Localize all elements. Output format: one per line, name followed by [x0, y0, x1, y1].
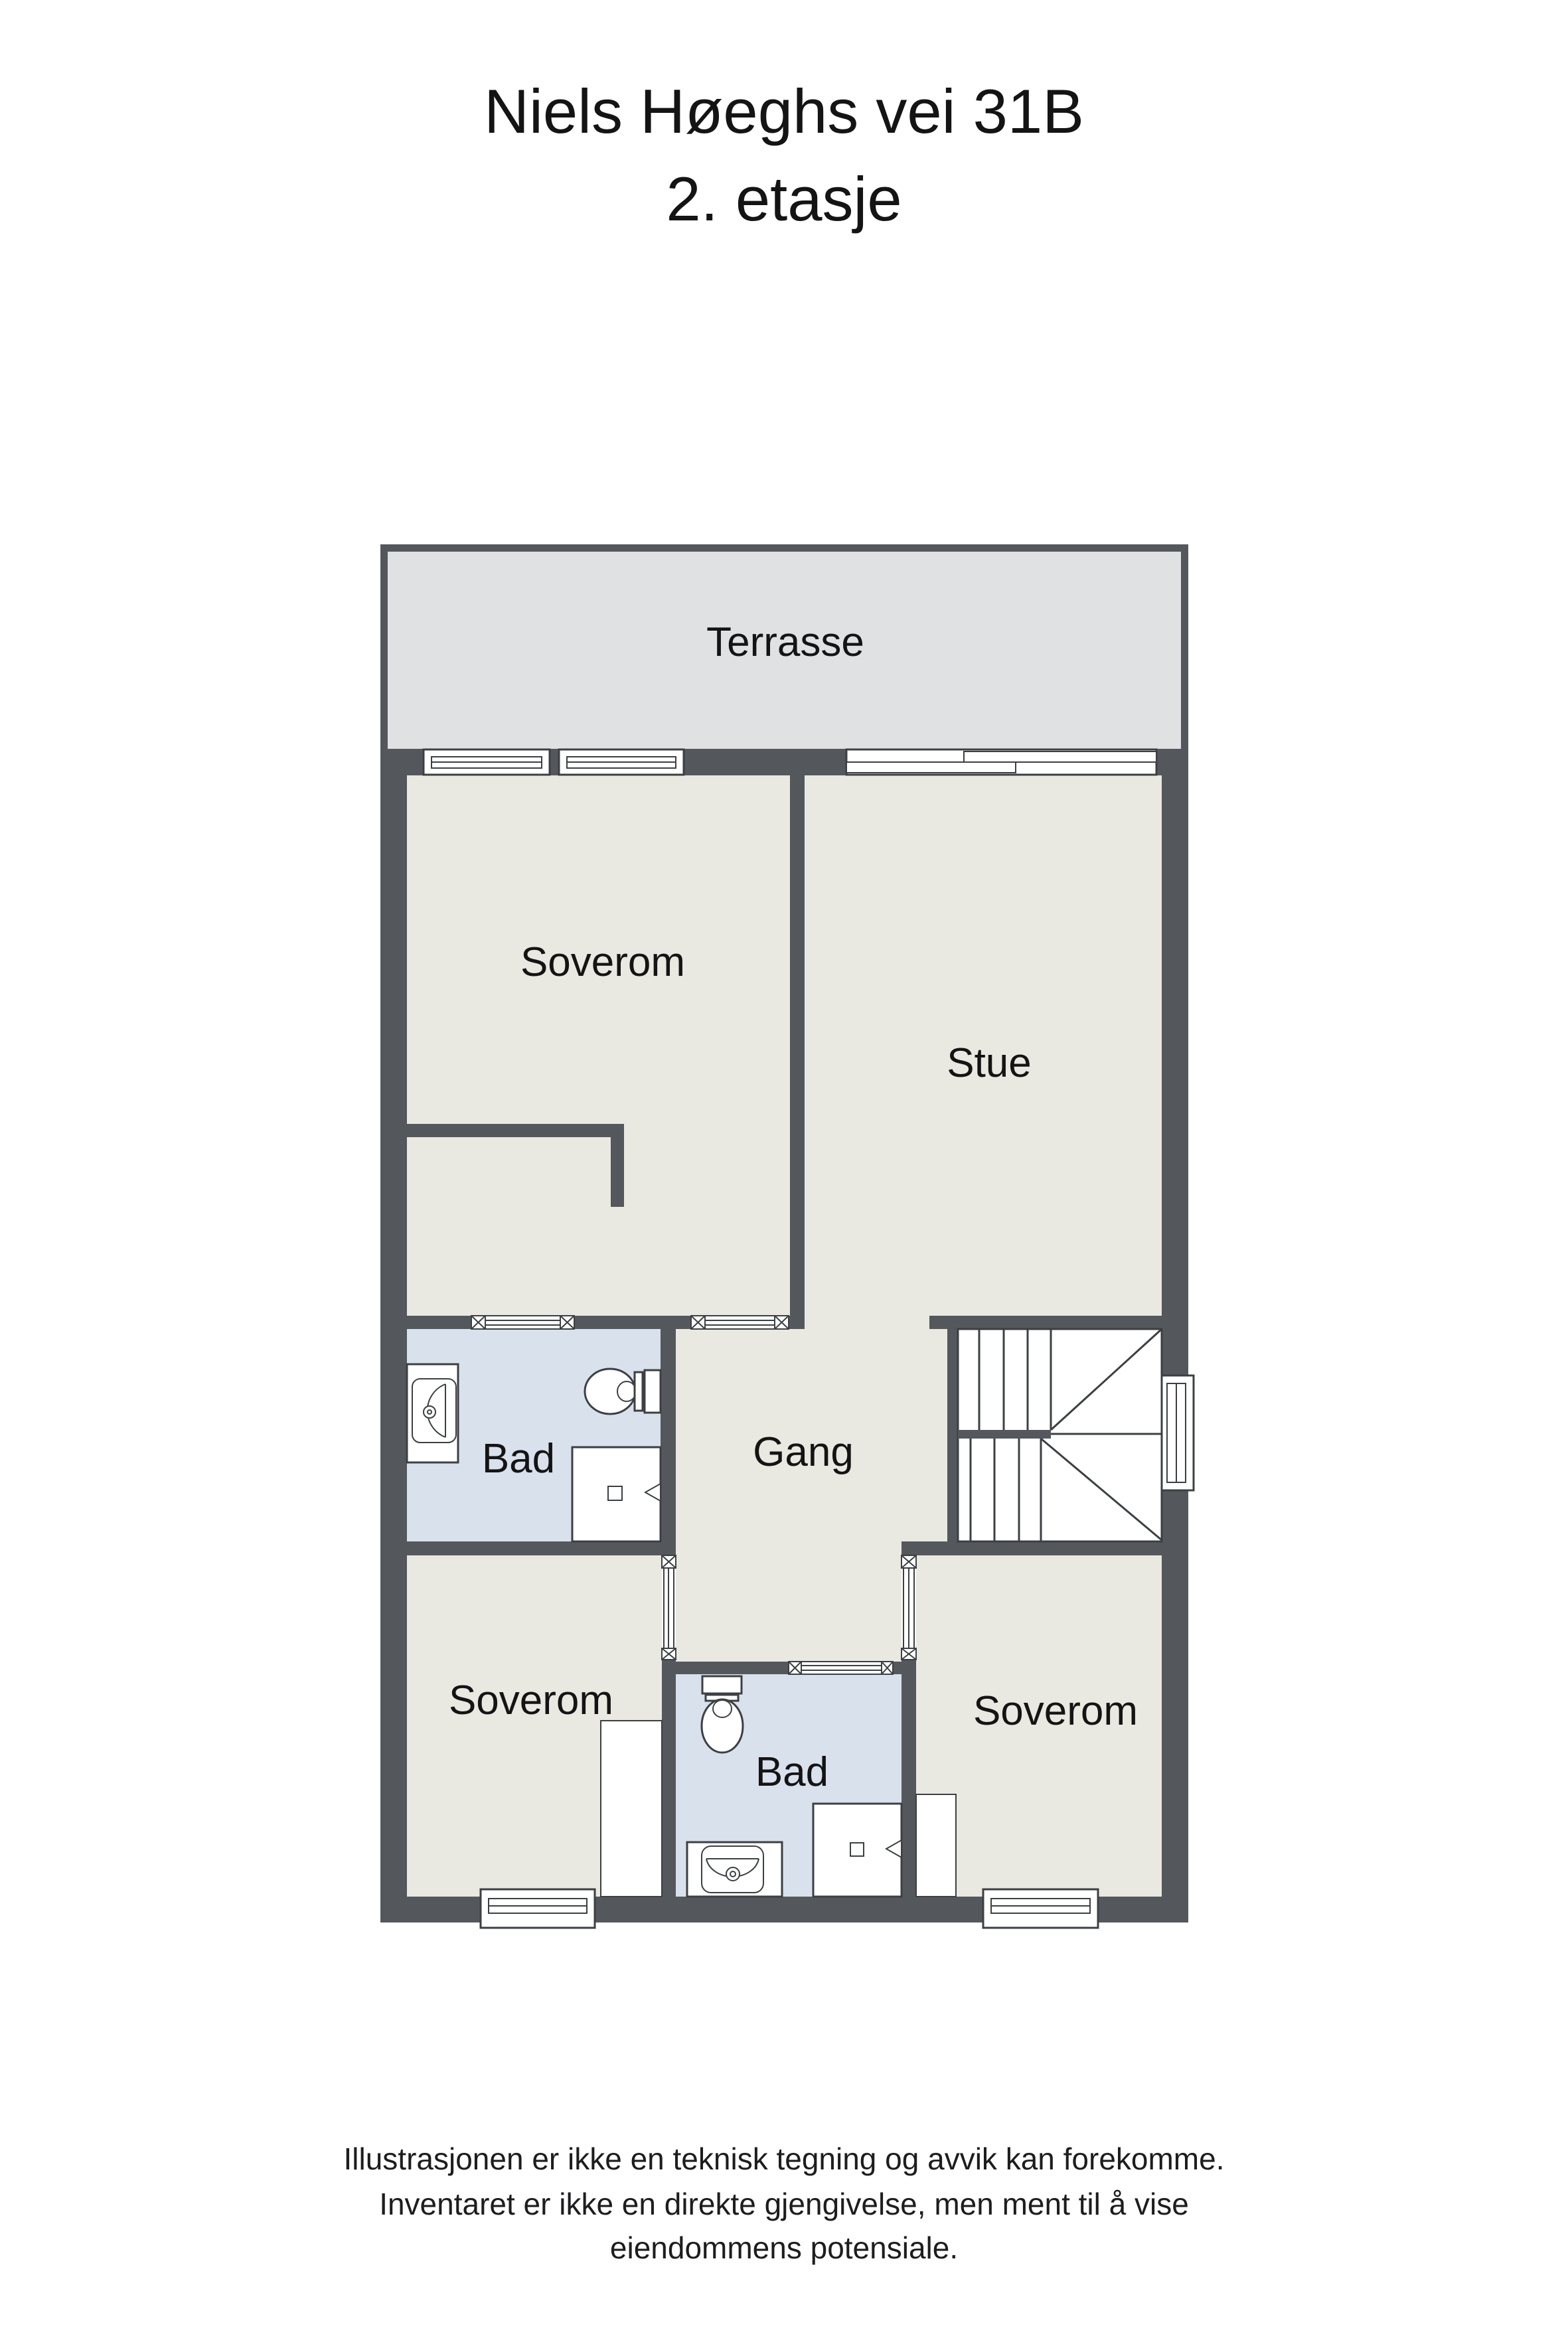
- exterior-wall-right: [1162, 749, 1188, 1922]
- stue-gang-opening: [805, 1316, 929, 1329]
- room-label-terrasse: Terrasse: [706, 619, 864, 665]
- disclaimer-line3: eiendommens potensiale.: [610, 2231, 958, 2265]
- disclaimer-line2: Inventaret er ikke en direkte gjengivels…: [379, 2187, 1189, 2221]
- disclaimer-line1: Illustrasjonen er ikke en teknisk tegnin…: [344, 2142, 1225, 2176]
- sink-fixture-bottom: [687, 1842, 782, 1897]
- room-label-bad-bottom: Bad: [755, 1749, 828, 1795]
- interior-window-2: [691, 1316, 789, 1329]
- gang-vestibule-floor: [676, 1541, 902, 1662]
- staircase: [958, 1329, 1162, 1541]
- window-stairs: [1159, 1375, 1194, 1490]
- room-label-gang: Gang: [753, 1429, 854, 1475]
- door-soverom-right: [902, 1555, 916, 1660]
- terrace-sliding-door: [846, 749, 1156, 775]
- page-title-line2: 2. etasje: [666, 164, 902, 234]
- wall-soverom-bottom-3: [789, 1316, 805, 1329]
- toilet-fixture-bottom: [702, 1676, 743, 1753]
- terrace-wall-left: [380, 544, 388, 749]
- room-label-bad-top: Bad: [482, 1436, 555, 1482]
- door-soverom-left: [662, 1555, 676, 1660]
- page-title: Niels Høeghs vei 31B 2. etasje: [484, 76, 1084, 234]
- room-label-soverom-left: Soverom: [449, 1678, 613, 1723]
- wardrobe-fixture-left: [601, 1721, 662, 1897]
- shower-fixture-top: [572, 1447, 661, 1541]
- wall-soverom-bottom-1: [407, 1316, 471, 1329]
- wall-bad-bottom-left: [662, 1660, 676, 1897]
- terrace-wall-top: [380, 544, 1188, 552]
- wall-bad-bottom-right: [902, 1660, 916, 1897]
- wall-soverom-bottom-2: [574, 1316, 691, 1329]
- toilet-fixture-top: [585, 1369, 661, 1414]
- terrace-wall-right: [1181, 544, 1188, 749]
- room-label-soverom-right: Soverom: [973, 1688, 1138, 1734]
- closet-wall-horizontal: [407, 1124, 624, 1137]
- soverom-top-floor: [407, 775, 800, 1316]
- wall-bad-top-bottom: [407, 1541, 662, 1555]
- wardrobe-fixture-right: [916, 1794, 956, 1897]
- room-label-stue: Stue: [947, 1040, 1032, 1086]
- sink-fixture-top: [407, 1364, 458, 1462]
- window-top-left: [424, 749, 550, 775]
- staircase-divider: [958, 1430, 1051, 1439]
- wall-bad-gang: [661, 1329, 676, 1555]
- page-title-line1: Niels Høeghs vei 31B: [484, 76, 1084, 146]
- floorplan-drawing: Niels Høeghs vei 31B 2. etasje: [0, 0, 1568, 2352]
- shower-fixture-bottom: [813, 1804, 902, 1897]
- room-label-soverom-top: Soverom: [520, 939, 685, 985]
- window-bad-bottom: [789, 1662, 893, 1674]
- exterior-wall-left: [380, 749, 407, 1922]
- closet-wall-vertical: [611, 1137, 624, 1207]
- interior-window-1: [471, 1316, 574, 1329]
- wall-stairs-bottom: [902, 1541, 1188, 1555]
- wall-soverom-stue: [790, 775, 805, 1329]
- window-top-mid: [559, 749, 684, 775]
- wall-stairs-top: [929, 1316, 1188, 1329]
- wall-stairs-left: [947, 1329, 958, 1541]
- window-bottom-left: [481, 1889, 595, 1928]
- disclaimer: Illustrasjonen er ikke en teknisk tegnin…: [344, 2142, 1225, 2265]
- floorplan-page: Niels Høeghs vei 31B 2. etasje: [0, 0, 1568, 2352]
- window-bottom-right: [983, 1889, 1098, 1928]
